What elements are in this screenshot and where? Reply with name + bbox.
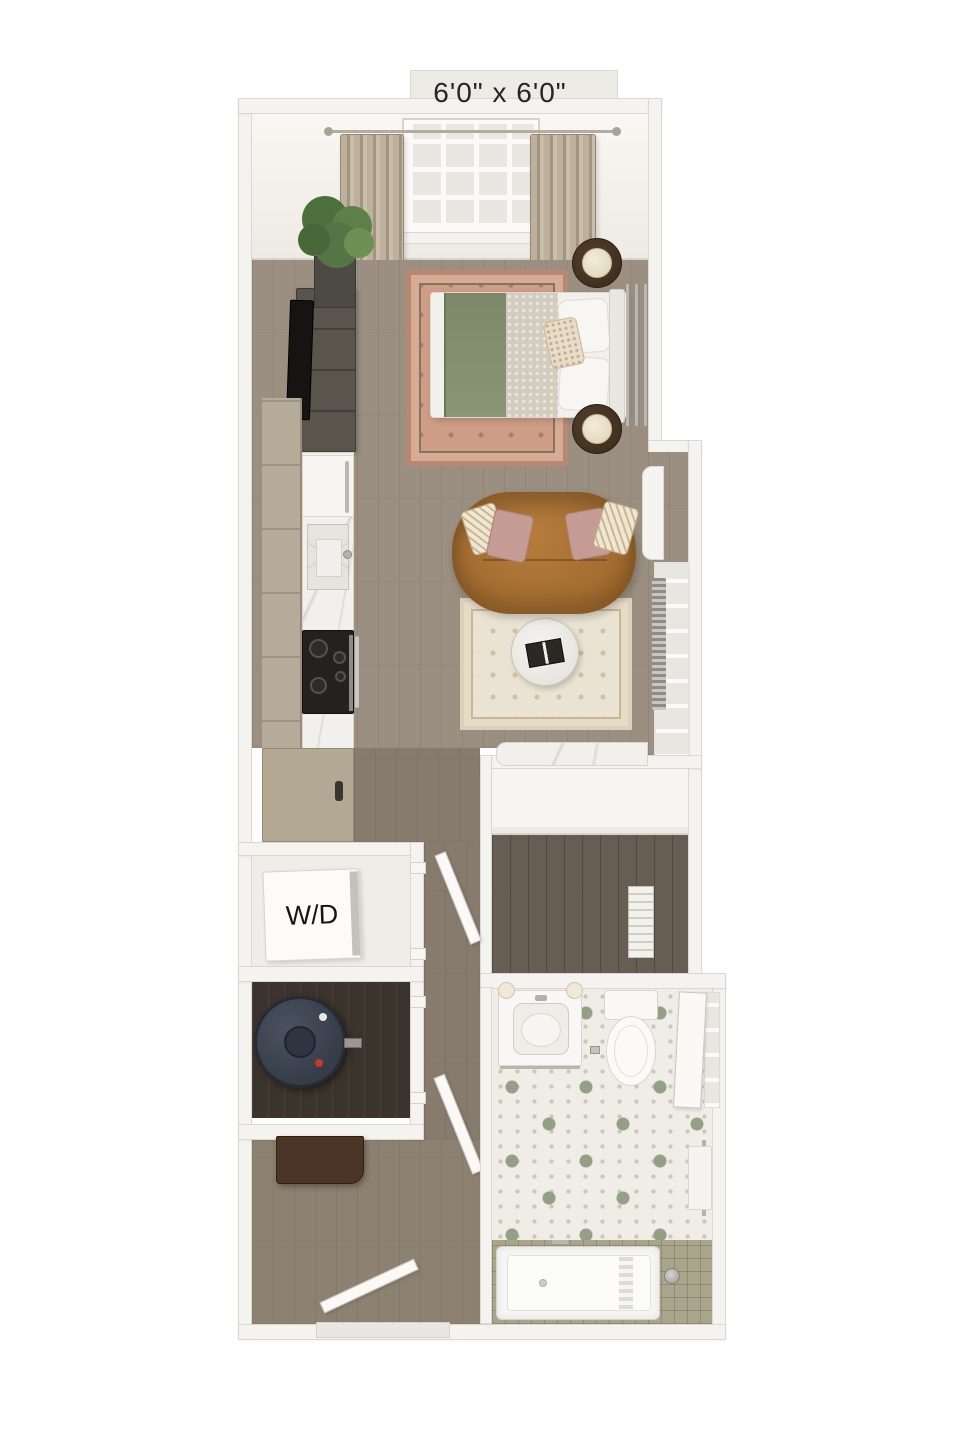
entry-console xyxy=(276,1136,364,1184)
utility-door-jamb-bottom xyxy=(410,1092,426,1104)
burner-3 xyxy=(310,677,327,694)
bathtub-drain xyxy=(539,1279,547,1287)
vanity-bowl xyxy=(521,1013,561,1047)
bathroom-window xyxy=(704,992,720,1108)
table-lamp-bottom xyxy=(582,414,612,444)
water-heater-valve-red xyxy=(315,1059,323,1067)
kitchen-lower-cabinet xyxy=(262,748,354,842)
closet-back-face xyxy=(492,769,688,827)
built-in-desk xyxy=(496,742,648,766)
washer-dryer-unit: W/D xyxy=(262,868,361,961)
burner-2 xyxy=(333,651,346,664)
closet-wall-left xyxy=(480,755,492,989)
bathtub xyxy=(496,1246,660,1320)
bed xyxy=(430,292,628,418)
water-heater-valve-white xyxy=(319,1013,327,1021)
wall-left xyxy=(238,98,252,1338)
cooktop-controls xyxy=(349,635,353,711)
water-heater xyxy=(254,996,346,1088)
bath-wall-left xyxy=(480,987,492,1324)
toilet-paper-holder xyxy=(590,1046,600,1054)
entry-threshold xyxy=(316,1322,450,1338)
washer-dryer-front-panel xyxy=(350,871,361,955)
table-lamp-top xyxy=(582,248,612,278)
burner-1 xyxy=(309,639,328,658)
curtain-rod-finial-right xyxy=(612,127,621,136)
window-radiator xyxy=(652,578,666,710)
wd-door-jamb-bottom xyxy=(410,948,426,960)
patio-dimension-label: 6'0" x 6'0" xyxy=(370,76,630,110)
bay-window-sill xyxy=(642,466,664,560)
sink-basin xyxy=(316,539,342,577)
closet-floor xyxy=(492,835,688,973)
vanity-sconce-left xyxy=(498,982,515,999)
bathtub-jet-panel xyxy=(619,1257,633,1309)
kitchen-sink xyxy=(307,524,349,590)
closet-shelf xyxy=(492,827,688,835)
refrigerator xyxy=(302,455,354,517)
floorplan-canvas: 6'0" x 6'0" xyxy=(0,0,960,1440)
vanity-faucet xyxy=(535,995,547,1001)
closet-slat-shelf xyxy=(628,886,654,958)
washer-dryer-label: W/D xyxy=(285,899,339,932)
kitchen-faucet xyxy=(343,550,352,559)
wall-right-living xyxy=(688,440,702,989)
bed-metal-frame xyxy=(626,284,648,426)
bath-wall-top xyxy=(480,973,726,989)
toilet-bowl xyxy=(606,1016,656,1086)
towel xyxy=(688,1146,712,1210)
shower-head xyxy=(664,1268,680,1284)
curtain-rod xyxy=(330,130,616,133)
wall-bottom xyxy=(238,1324,726,1340)
curtain-rod-finial-left xyxy=(324,127,333,136)
cabinet-handle xyxy=(335,781,343,801)
floor-hall-upper xyxy=(354,748,480,842)
water-heater-pipe xyxy=(344,1038,362,1048)
bed-headboard xyxy=(609,289,625,423)
plant-foliage-5 xyxy=(344,228,374,258)
patio-dimension-text: 6'0" x 6'0" xyxy=(433,77,566,108)
tub-faucet xyxy=(552,1240,568,1244)
utility-door-jamb-top xyxy=(410,996,426,1008)
sofa-seat-seam xyxy=(483,559,607,561)
bedroom-window-panes xyxy=(408,124,534,228)
bed-green-blanket xyxy=(444,293,506,417)
water-heater-cap xyxy=(284,1026,316,1058)
vanity-sconce-right xyxy=(566,982,583,999)
wd-wall-top xyxy=(238,842,424,856)
bathroom-vanity xyxy=(498,990,582,1066)
plant-foliage-4 xyxy=(298,224,330,256)
wall-right-bedroom xyxy=(648,98,662,454)
oven-handle xyxy=(355,636,359,708)
window-sill xyxy=(396,232,546,244)
refrigerator-handle xyxy=(345,461,349,513)
toilet-seat xyxy=(614,1025,648,1077)
bedroom-window xyxy=(402,118,540,234)
cooktop xyxy=(302,630,354,714)
wd-door-jamb-top xyxy=(410,862,426,874)
burner-4 xyxy=(335,671,346,682)
wd-wall-divider xyxy=(238,966,424,982)
vanity-towel-bar xyxy=(500,1066,580,1069)
